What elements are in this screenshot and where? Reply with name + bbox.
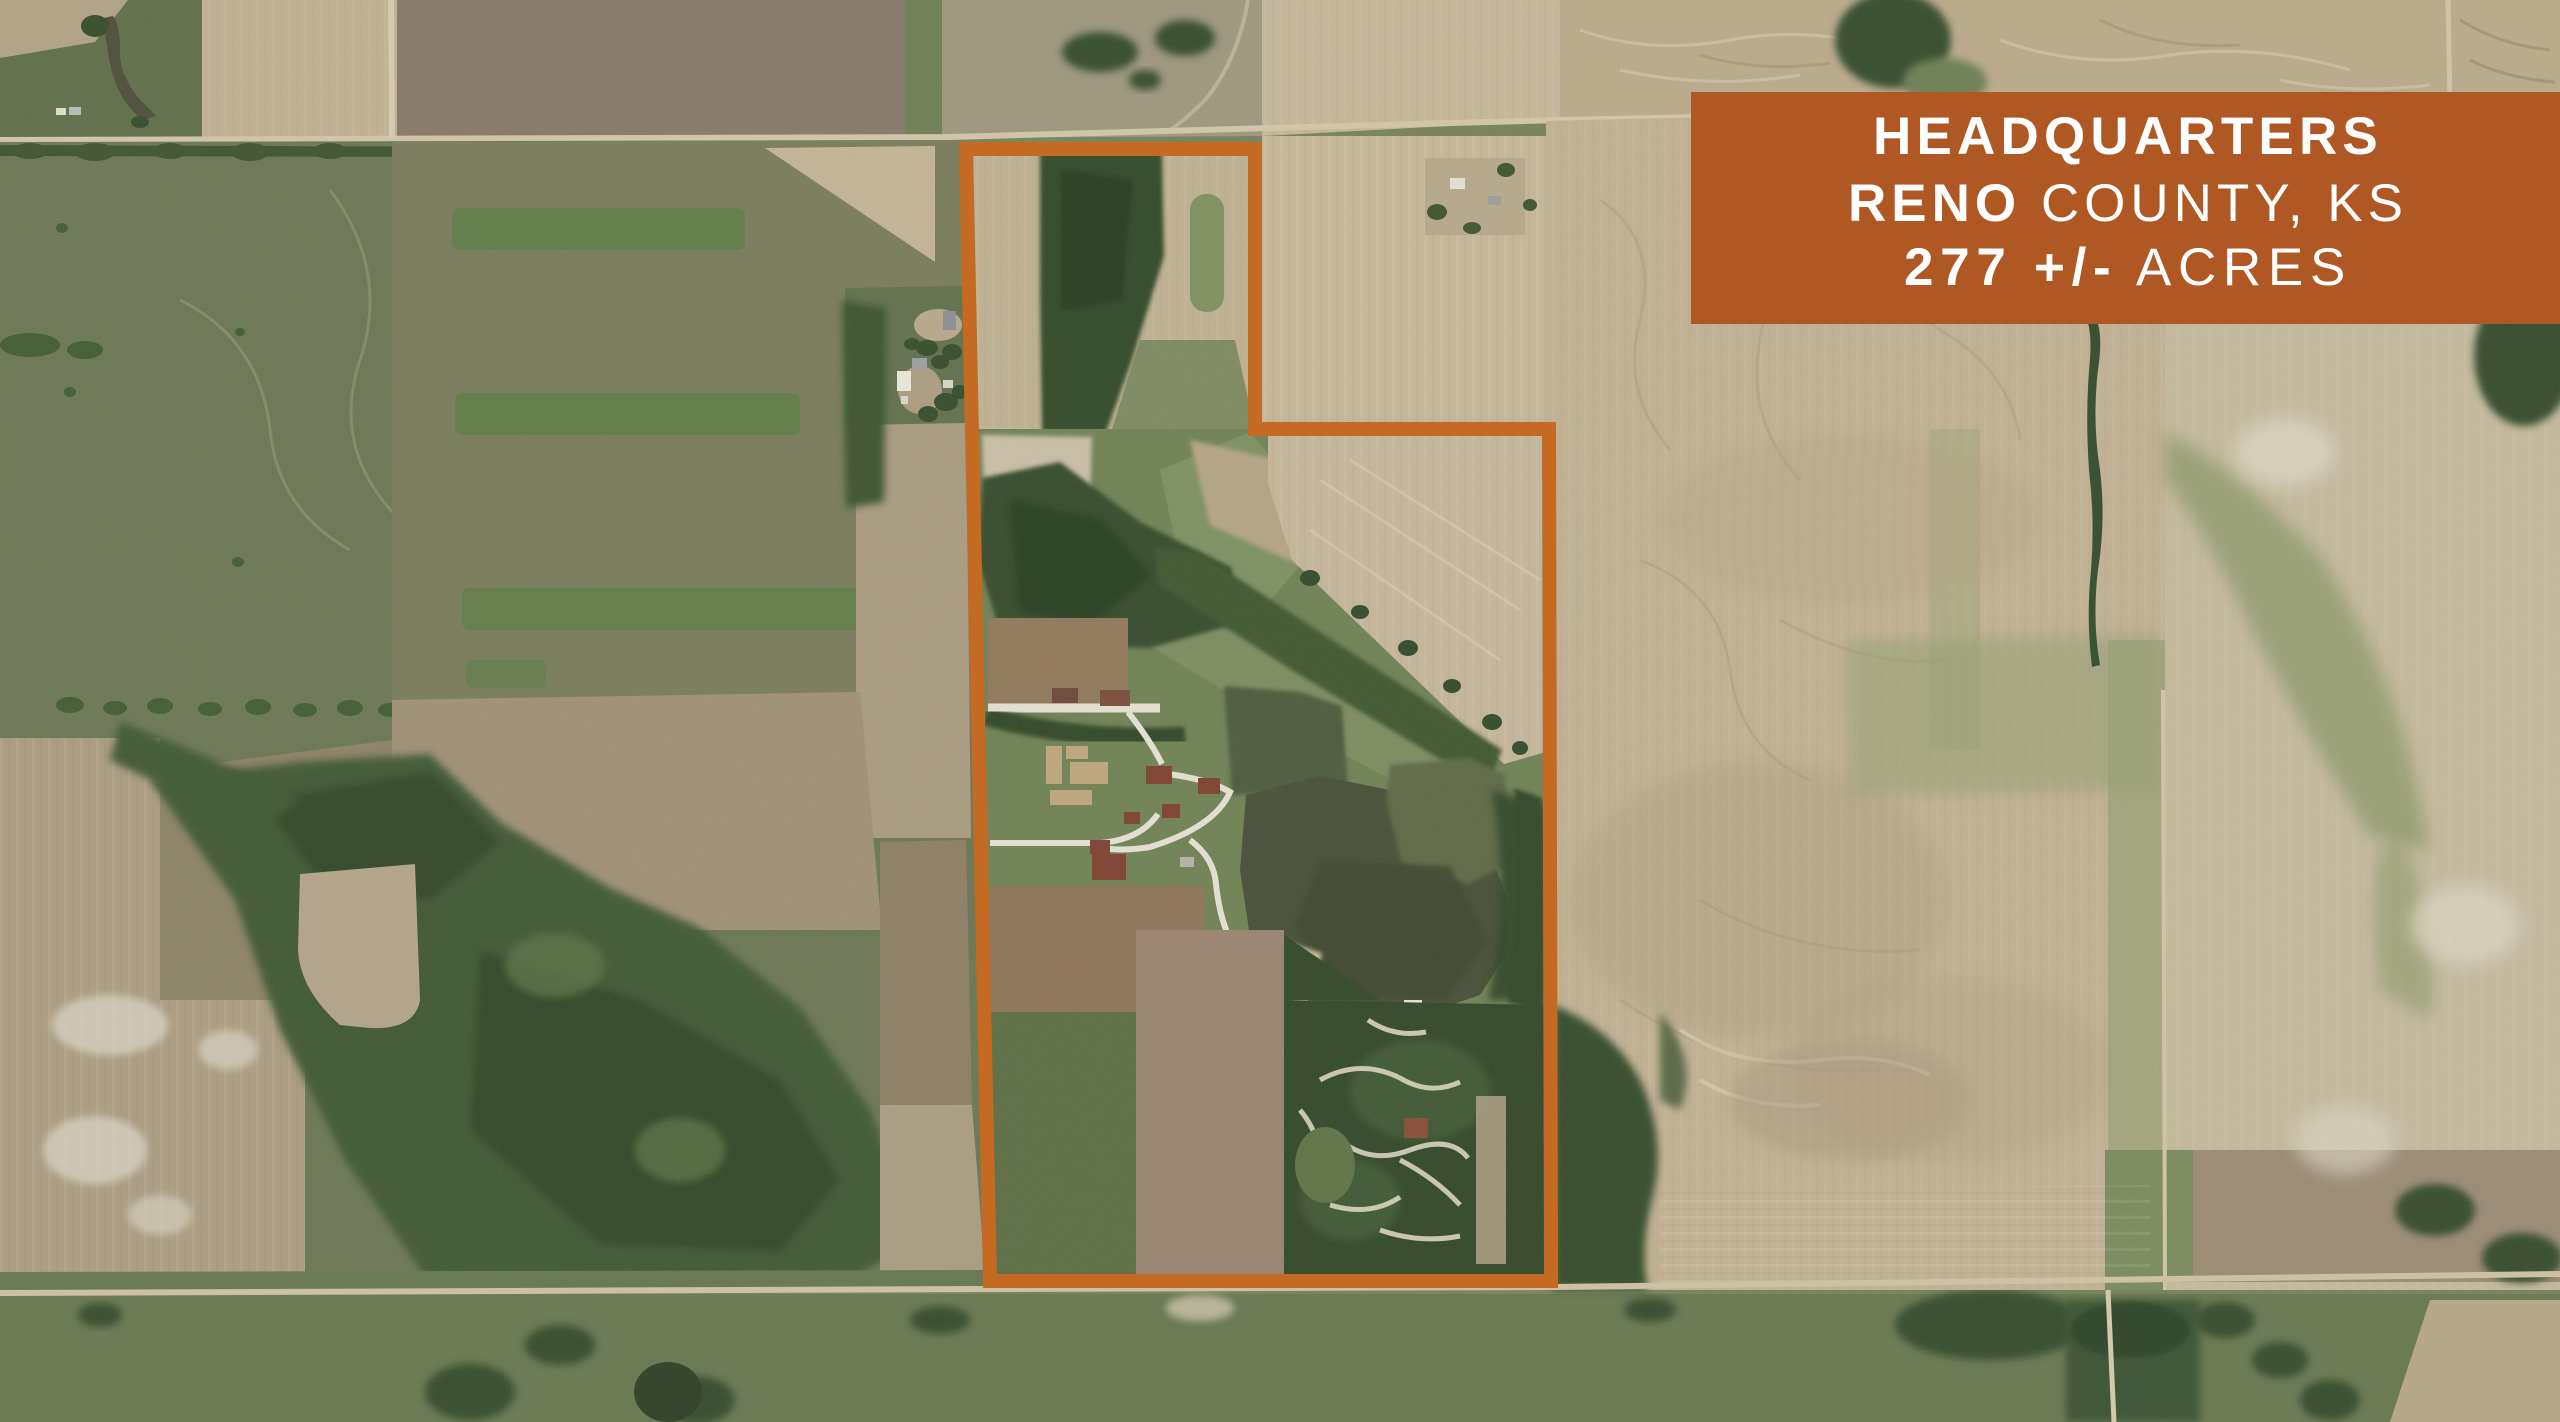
svg-text:RENO COUNTY, KS: RENO COUNTY, KS [1848,174,2408,233]
svg-text:277 +/- ACRES: 277 +/- ACRES [1904,238,2352,297]
svg-text:HEADQUARTERS: HEADQUARTERS [1873,107,2383,166]
